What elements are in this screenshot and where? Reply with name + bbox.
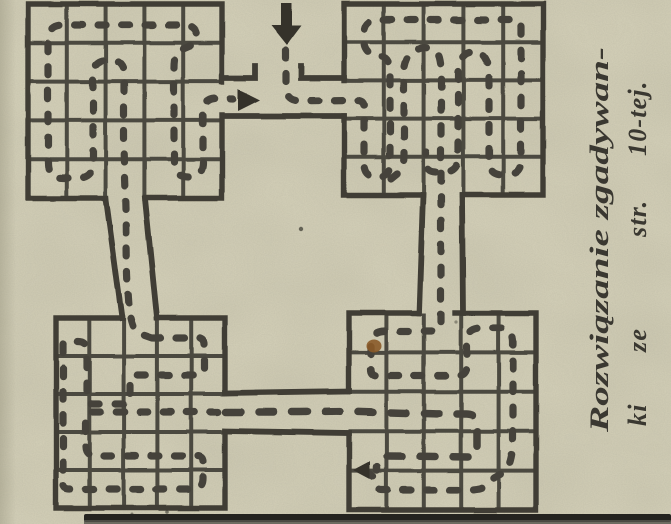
svg-text:ze: ze	[623, 328, 652, 353]
svg-text:str.: str.	[623, 200, 652, 238]
svg-text:10-tej.: 10-tej.	[623, 80, 652, 156]
svg-text:ki: ki	[623, 403, 652, 426]
svg-text:Rozwiązanie zgadywan-: Rozwiązanie zgadywan-	[584, 47, 614, 433]
